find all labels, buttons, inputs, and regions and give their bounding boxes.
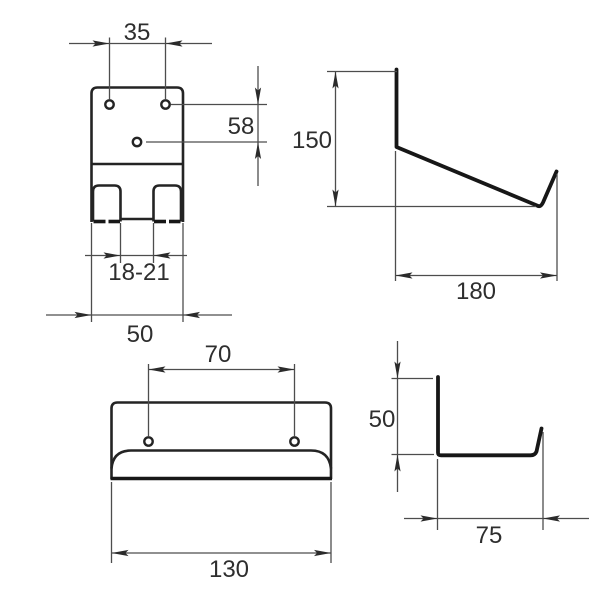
dim-label-tray-width: 130: [209, 556, 249, 583]
dimension-hook-height: 150: [292, 72, 536, 207]
hook-side-profile: [397, 70, 557, 207]
dim-label-hook-width: 50: [127, 321, 154, 348]
dim-label-hook-hole-spacing: 35: [124, 19, 151, 46]
dimension-hook-depth: 180: [396, 151, 558, 305]
dim-label-hook-hole-offset: 58: [228, 113, 255, 140]
dimension-hook-slot-width: 18-21: [85, 223, 187, 286]
tray-side-profile: [438, 377, 542, 455]
hook-front-right-leg: [154, 186, 182, 222]
dimension-tray-depth: 75: [404, 432, 589, 549]
dim-label-tray-height: 50: [369, 406, 396, 433]
dim-label-hook-height: 150: [292, 127, 332, 154]
tray-front-lip-curve: [112, 451, 332, 469]
drawing-page: 35 58 18-21 50: [0, 0, 610, 610]
dim-label-tray-depth: 75: [476, 522, 503, 549]
dim-label-hook-depth: 180: [456, 278, 496, 305]
tray-front-hole-left: [144, 437, 152, 445]
dimension-tray-height: 50: [369, 341, 434, 492]
hook-front-hole-left: [105, 100, 113, 108]
dim-label-tray-hole-spacing: 70: [205, 341, 232, 368]
hook-side-view: 150 180: [292, 70, 557, 306]
tray-side-view: 50 75: [369, 341, 589, 549]
dimension-tray-hole-spacing: 70: [149, 341, 295, 436]
hook-front-hole-right: [161, 100, 169, 108]
tray-front-hole-right: [290, 437, 298, 445]
technical-drawing-canvas: 35 58 18-21 50: [0, 0, 610, 610]
dim-label-hook-slot-width: 18-21: [108, 259, 169, 286]
hook-front-hole-middle: [133, 138, 141, 146]
hook-front-left-leg: [93, 186, 121, 222]
hook-front-view: 35 58 18-21 50: [46, 19, 267, 348]
dimension-hook-hole-offset: 58: [146, 66, 267, 186]
dimension-tray-width: 130: [112, 482, 332, 583]
tray-front-view: 70 130: [111, 341, 333, 583]
